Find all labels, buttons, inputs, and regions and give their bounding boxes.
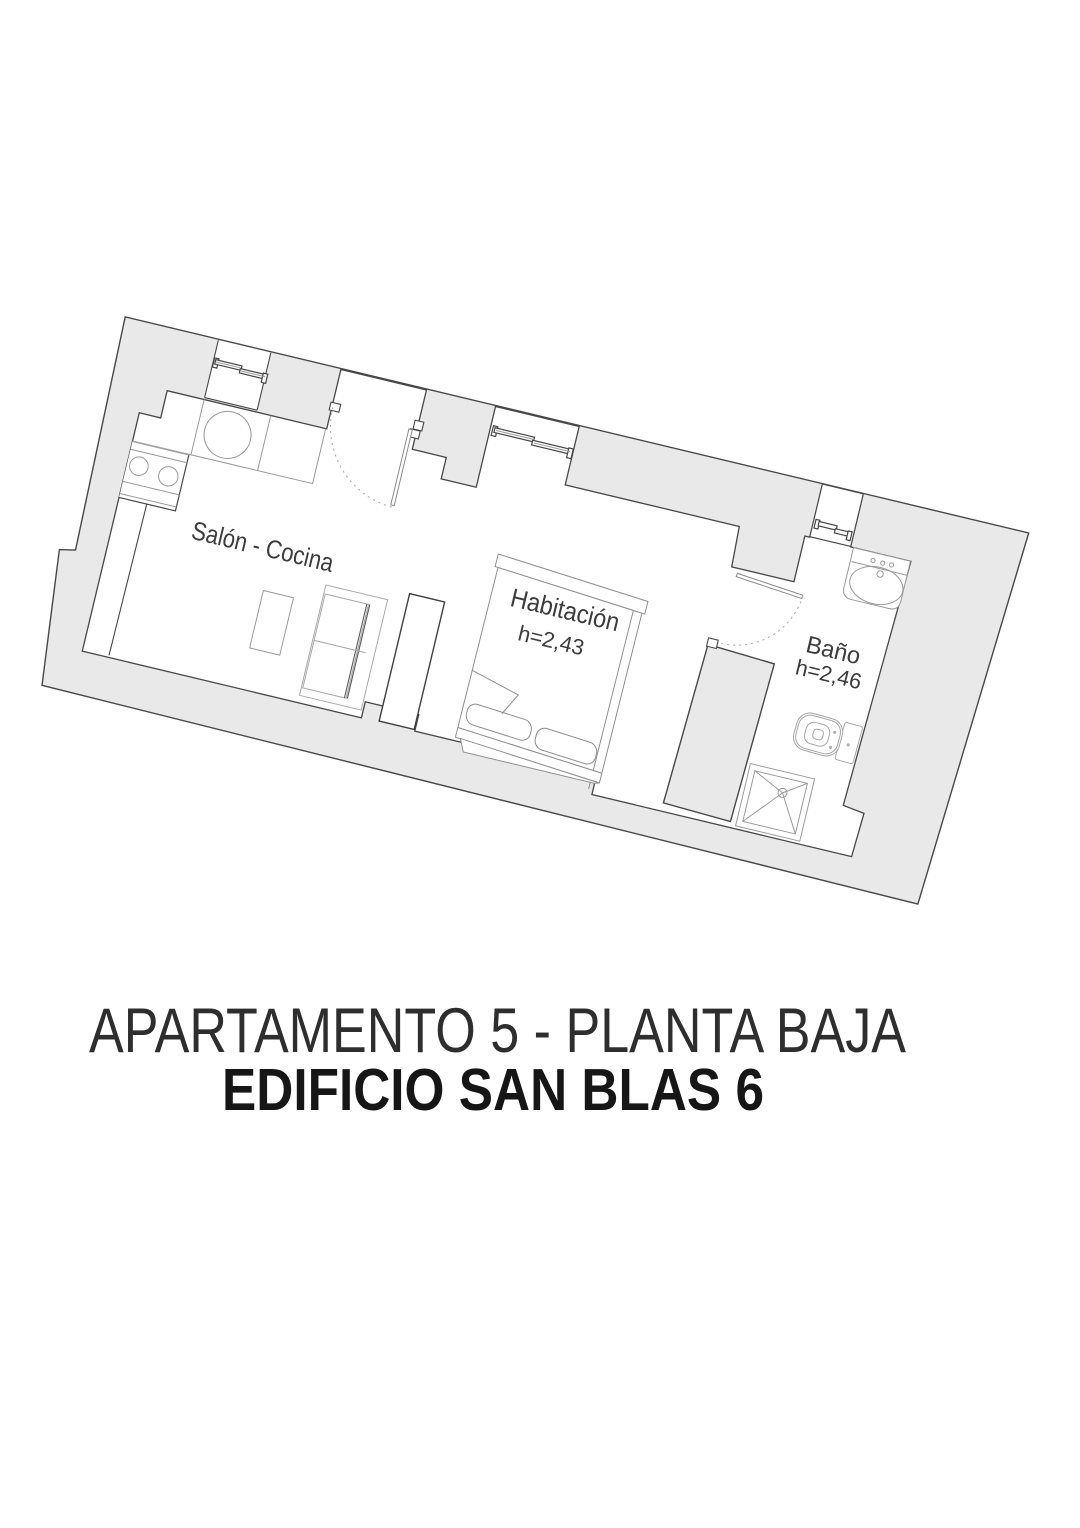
svg-text:EDIFICIO SAN BLAS 6: EDIFICIO SAN BLAS 6: [222, 1057, 764, 1123]
svg-text:APARTAMENTO 5 - PLANTA BAJA: APARTAMENTO 5 - PLANTA BAJA: [89, 996, 906, 1066]
